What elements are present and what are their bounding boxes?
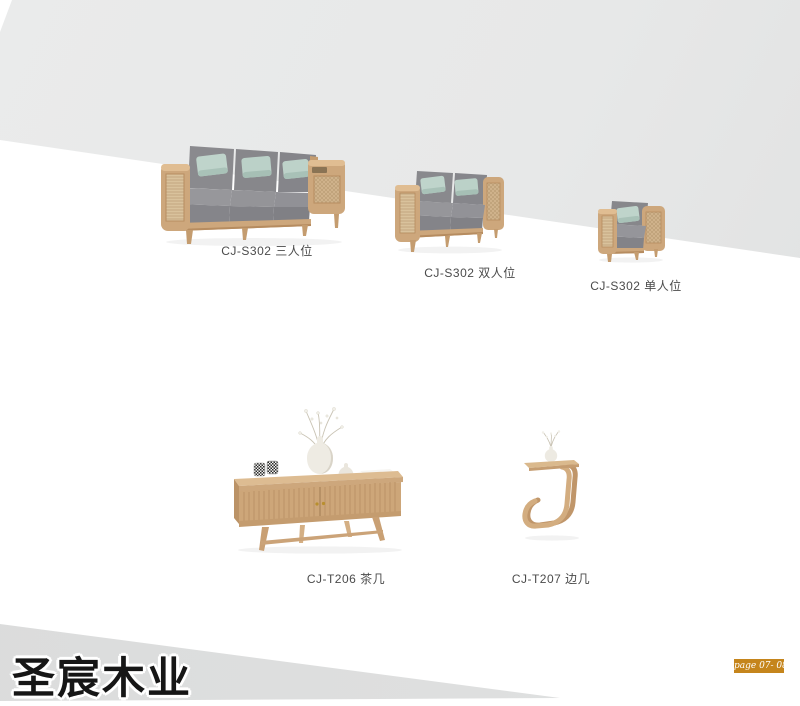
three-seat-sofa-image xyxy=(158,134,350,248)
page-number-badge: page 07- 08 xyxy=(734,659,784,673)
label-sofa-three-seat: CJ-S302 三人位 xyxy=(172,242,362,259)
catalog-page: CJ-S302 三人位 xyxy=(0,0,800,706)
product-coffee-table xyxy=(224,403,410,555)
brand-title: 圣宸木业 xyxy=(12,644,192,706)
coffee-table-image xyxy=(224,403,410,555)
side-table-image xyxy=(518,430,590,546)
product-armchair-single xyxy=(596,196,670,264)
single-seat-armchair-image xyxy=(596,196,670,264)
two-seat-sofa-image xyxy=(395,163,509,255)
label-side-table: CJ-T207 边几 xyxy=(456,570,646,587)
product-side-table xyxy=(518,430,590,546)
label-coffee-table: CJ-T206 茶几 xyxy=(251,570,441,587)
product-sofa-two-seat xyxy=(395,163,509,255)
label-armchair-single: CJ-S302 单人位 xyxy=(541,277,731,294)
backdrop-wall xyxy=(0,0,800,706)
product-sofa-three-seat xyxy=(158,134,350,248)
label-sofa-two-seat: CJ-S302 双人位 xyxy=(375,264,565,281)
